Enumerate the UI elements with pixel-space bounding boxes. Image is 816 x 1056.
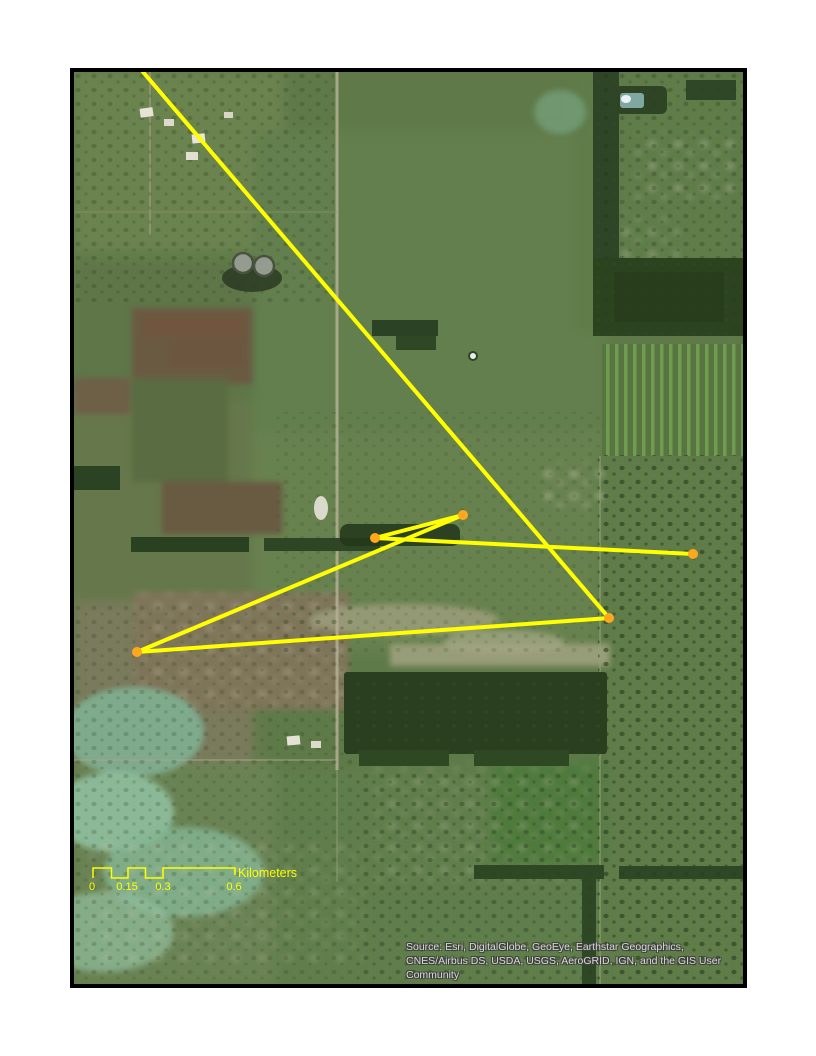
- attribution-line: CNES/Airbus DS, USDA, USGS, AeroGRID, IG…: [406, 955, 736, 969]
- scale-unit-label: Kilometers: [238, 867, 297, 880]
- scale-bar-shape: [93, 868, 235, 878]
- attribution-text: Source: Esri, DigitalGlobe, GeoEye, Eart…: [406, 941, 736, 982]
- map-frame: 0 0.15 0.3 0.6 Kilometers Source: Esri, …: [70, 68, 747, 988]
- page: 0 0.15 0.3 0.6 Kilometers Source: Esri, …: [0, 0, 816, 1056]
- scale-tick-label: 0: [89, 881, 95, 893]
- scale-tick-label: 0.3: [155, 881, 170, 893]
- scale-bar: [74, 72, 743, 984]
- attribution-line: Source: Esri, DigitalGlobe, GeoEye, Eart…: [406, 941, 736, 955]
- scale-tick-label: 0.6: [226, 881, 241, 893]
- attribution-line: Community: [406, 969, 736, 983]
- scale-tick-label: 0.15: [116, 881, 137, 893]
